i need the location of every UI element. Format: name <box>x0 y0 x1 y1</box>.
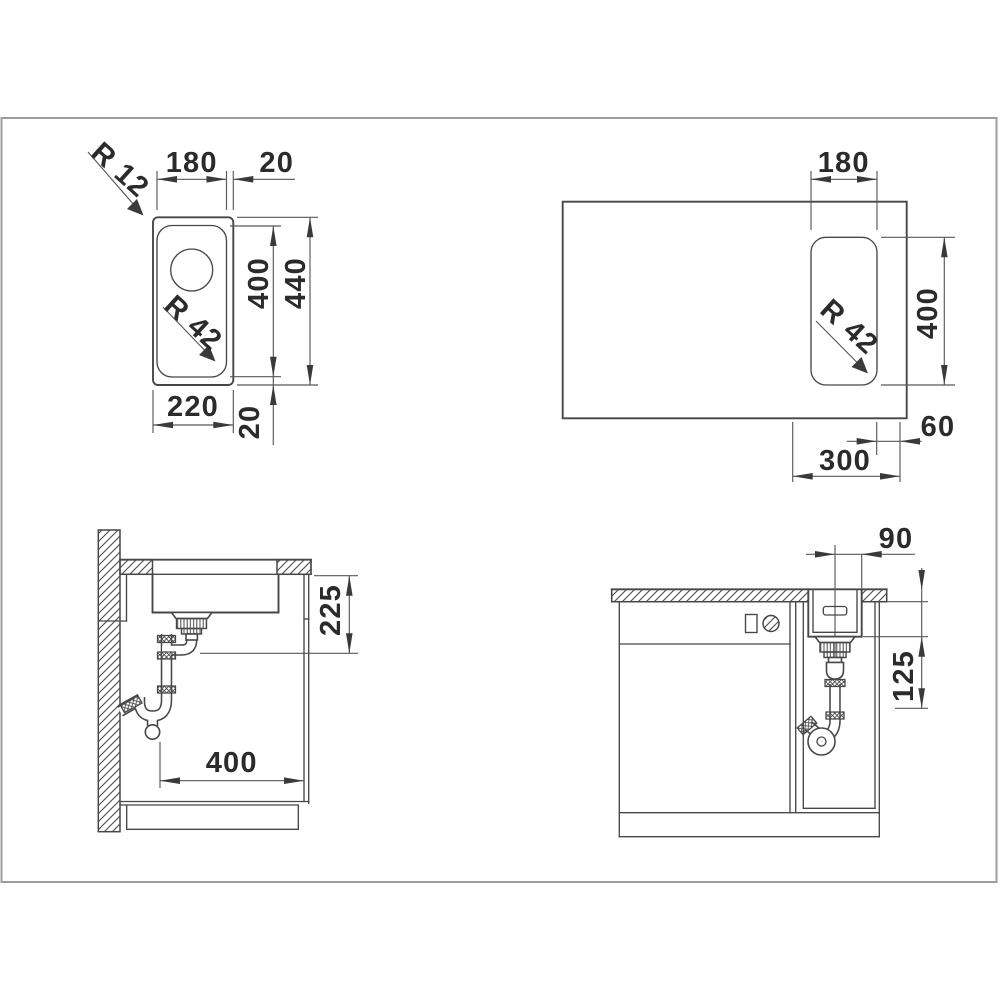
pipe-nut <box>826 712 844 719</box>
worktop-front-right <box>862 589 887 601</box>
pipe-nut <box>158 636 176 643</box>
dim-bowl-length: 400 <box>243 257 275 309</box>
dim-edge-distance: 60 <box>921 411 956 443</box>
strainer-body <box>177 619 207 629</box>
dim-outer-length: 440 <box>280 257 312 309</box>
strainer-locknut <box>824 652 846 658</box>
worktop-front-left <box>612 589 809 601</box>
drain-tailpiece <box>186 634 197 640</box>
strainer-body <box>820 643 850 653</box>
product-drawing-page: R 12 R 42 180 20 400 440 20 <box>0 0 1000 1000</box>
trap-bend-front <box>808 728 835 755</box>
pipe-nut <box>158 652 176 659</box>
pipe-nut <box>158 686 176 693</box>
appliance-knob-icon <box>763 616 779 632</box>
wall-section <box>98 530 120 832</box>
drain-flange <box>815 637 855 643</box>
pipe-nut <box>825 680 845 687</box>
strainer-locknut <box>182 629 202 635</box>
installation-drawing: R 12 R 42 180 20 400 440 20 <box>0 0 1000 1000</box>
dim-cabinet-clearance: 400 <box>206 747 258 779</box>
dim-rim-offset-right: 20 <box>259 147 294 179</box>
dim-rim-offset-bottom: 20 <box>234 405 266 440</box>
drawing-panel-frame <box>2 118 997 882</box>
trap-cleanout <box>145 725 159 739</box>
dim-cutout-length: 400 <box>912 287 944 339</box>
dim-bowl-width: 180 <box>166 147 218 179</box>
worktop-section-right <box>277 560 311 575</box>
drain-flange <box>172 613 212 619</box>
dim-cutout-width: 180 <box>818 147 870 179</box>
trap-inlet-cup <box>827 663 844 680</box>
dim-install-depth: 225 <box>315 584 347 636</box>
dim-outer-width: 220 <box>167 391 219 423</box>
worktop-section-left <box>120 560 153 575</box>
dim-drain-offset: 90 <box>879 523 914 555</box>
dim-clearance-below-bowl: 125 <box>888 650 920 702</box>
dim-cabinet-width: 300 <box>819 445 871 477</box>
